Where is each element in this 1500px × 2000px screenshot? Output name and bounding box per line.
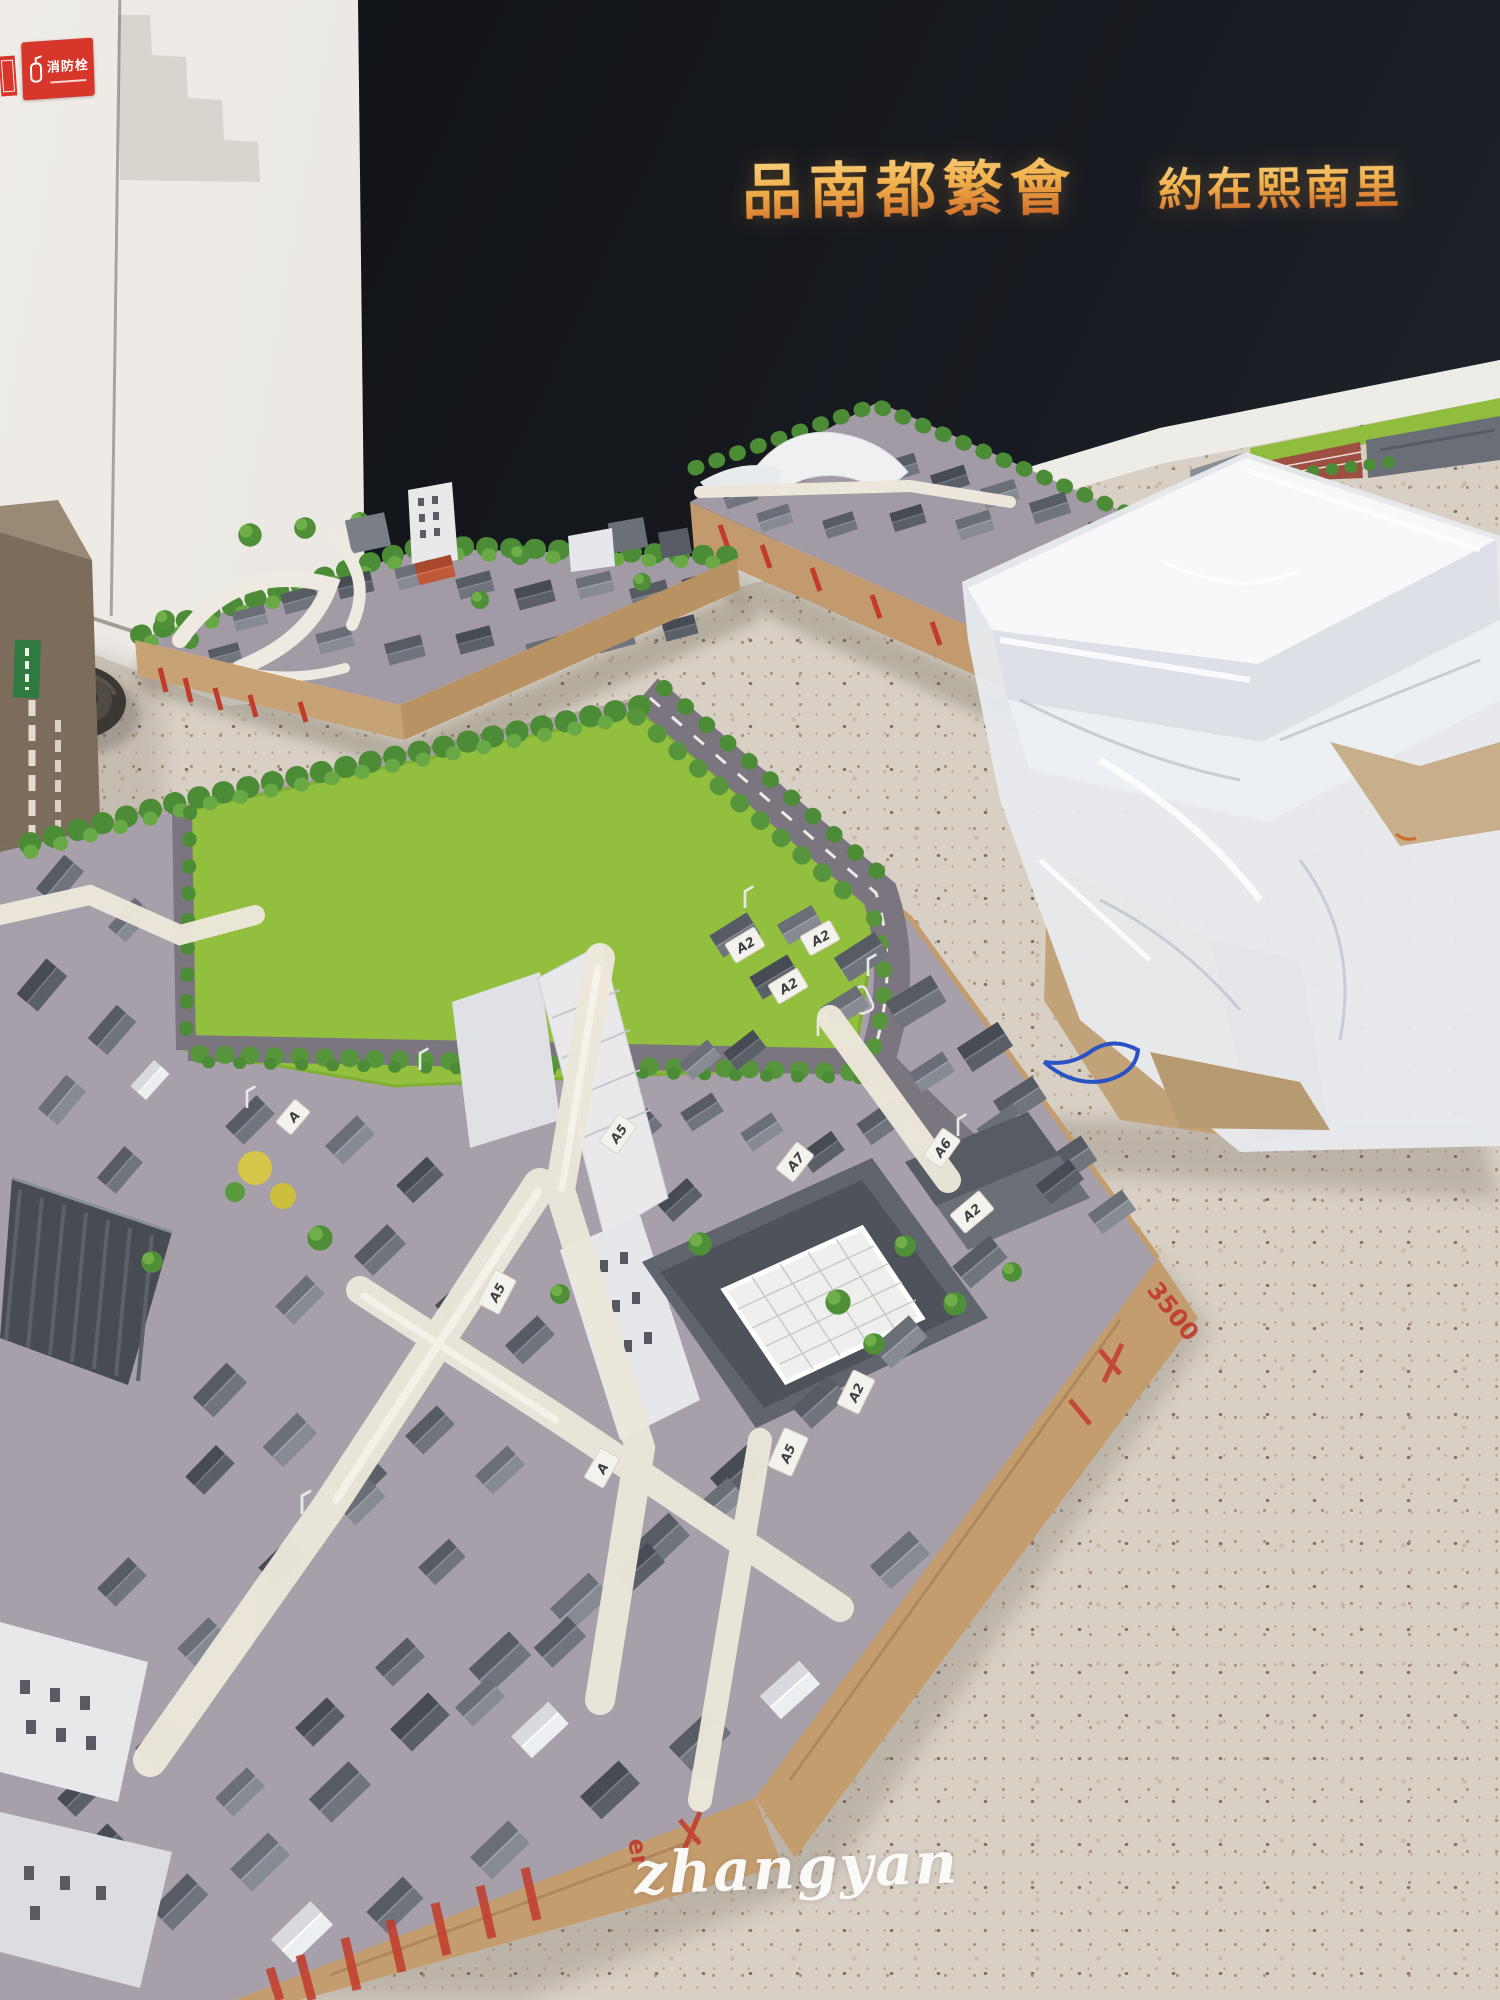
plastic-wrapped-stack bbox=[962, 452, 1500, 1200]
model-main: 3500 er A2 A2 A2 A2 A5 A7 A6 A2 A5 A A5 … bbox=[0, 688, 1210, 2000]
showroom-photo: 品南都繁會 約在熙南里 消防栓 bbox=[0, 0, 1500, 2000]
models-scene: 3500 er A2 A2 A2 A2 A5 A7 A6 A2 A5 A A5 … bbox=[0, 0, 1500, 2000]
white-tower bbox=[408, 482, 458, 566]
yellow-tree bbox=[238, 1151, 272, 1185]
watermark: zhangyan bbox=[633, 1828, 960, 1907]
